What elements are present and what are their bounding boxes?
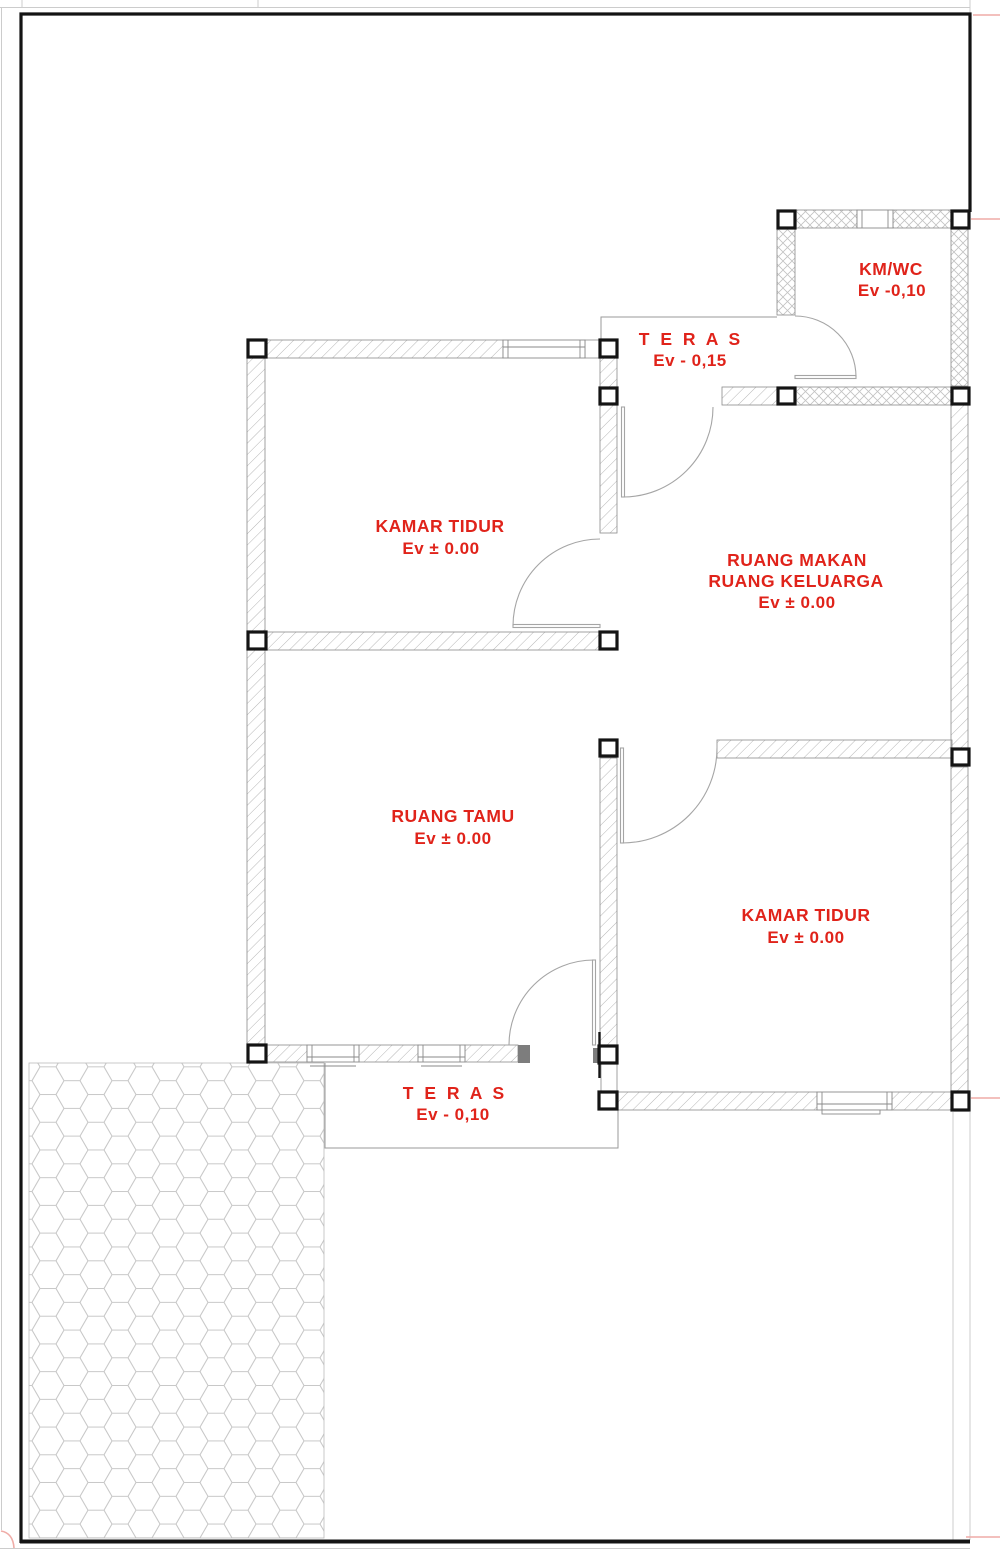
teras-bawah-name: T E R A S [403,1083,507,1103]
kt2-name: KAMAR TIDUR [742,905,871,925]
column-kt1-se [600,632,617,649]
wall-center [600,758,617,1045]
wall-kmwc-top-1 [796,210,857,228]
wall-kt1-top [267,340,503,358]
teras-bawah-elevation: Ev - 0,10 [416,1105,490,1124]
wall-kmwc-top-2 [893,210,951,228]
entrance-jamb-left [518,1045,530,1063]
column-kmwc-ne [952,211,969,228]
wall-kt1-right [600,405,617,533]
wall-rt-bottom-1 [267,1045,307,1062]
wall-kt1-right-upper [600,358,617,387]
rm-name-line2: RUANG KELUARGA [708,571,883,591]
wall-rt-bottom-3 [465,1045,518,1062]
kt2-elevation: Ev ± 0.00 [767,928,844,947]
wall-kt2-bottom-2 [892,1092,952,1110]
wall-right-kt2 [951,767,968,1092]
wall-kmwc-left [777,228,795,315]
wall-rt-bottom-2 [359,1045,418,1062]
column-kt1-sw [248,632,266,649]
wall-rm-top [722,387,777,405]
wall-right-rm [951,405,968,748]
wall-kt2-top [717,740,952,758]
wall-rt-left [247,650,265,1045]
wall-kt2-bottom-1 [618,1092,817,1110]
window-kmwc-top [857,210,893,228]
teras-atas-elevation: Ev - 0,15 [653,351,727,370]
column-kt1-ne [600,340,617,357]
kmwc-elevation: Ev -0,10 [858,281,926,300]
column-rt-se [599,1046,617,1063]
kt1-name: KAMAR TIDUR [376,516,505,536]
column-rm-nw [600,388,617,404]
wall-kmwc-bottom [796,387,951,405]
kmwc-name: KM/WC [859,259,923,279]
column-kt2-sw [599,1092,617,1109]
column-kt2-se [952,1092,969,1110]
wall-kt1-top-end [585,340,600,358]
column-kmwc-sw [778,388,795,404]
paving-hexagon-area [29,1063,324,1538]
wall-kt1-left [247,358,265,632]
rt-elevation: Ev ± 0.00 [414,829,491,848]
column-rt-sw [248,1045,266,1062]
column-kmwc-se [952,388,969,404]
teras-atas-name: T E R A S [639,329,743,349]
wall-kmwc-right [951,228,968,386]
column-kt1-nw [248,340,266,357]
rm-name-line1: RUANG MAKAN [727,550,867,570]
kt1-elevation: Ev ± 0.00 [402,539,479,558]
column-kmwc-nw [778,211,795,228]
column-kt2-ne [952,749,969,765]
window-kt1-top [503,340,585,358]
wall-center-plain-seg [601,1063,617,1092]
column-center [600,740,617,756]
wall-kt1-bottom [267,632,600,650]
rm-elevation: Ev ± 0.00 [758,593,835,612]
floor-plan-drawing: KM/WC Ev -0,10 T E R A S Ev - 0,15 KAMAR… [0,0,1000,1553]
rt-name: RUANG TAMU [391,806,514,826]
